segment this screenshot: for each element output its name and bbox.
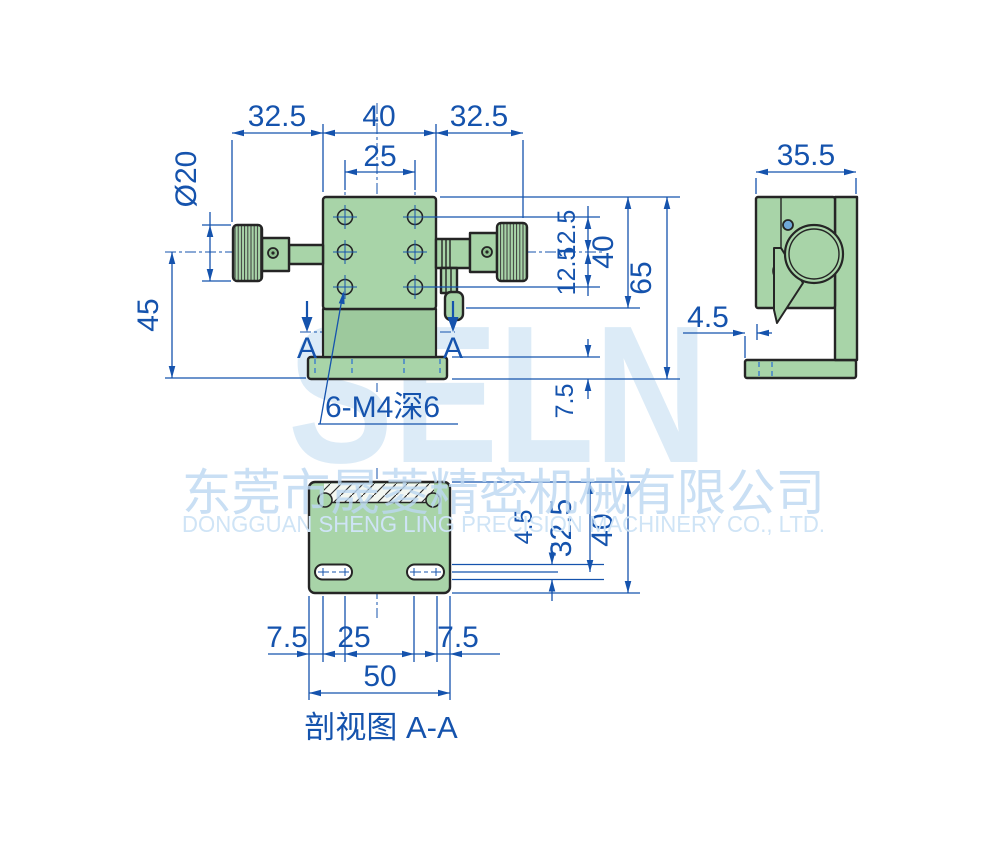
dim-total-height: 65 xyxy=(625,261,658,294)
dim-knob-diameter: Ø20 xyxy=(170,151,203,208)
dim-base-height: 7.5 xyxy=(551,384,579,419)
carriage-body xyxy=(323,309,436,357)
side-set-screw xyxy=(783,220,793,230)
thread-note: 6-M4深6 xyxy=(325,391,440,424)
right-set-screw-dot xyxy=(485,250,488,253)
section-marker-left: A xyxy=(297,332,317,365)
dim-slot-spacing: 25 xyxy=(337,621,370,654)
dim-hole-offset-lower: 12.5 xyxy=(553,247,581,296)
side-foot xyxy=(745,360,856,378)
section-caption: 剖视图 A-A xyxy=(304,710,458,745)
clamp-block xyxy=(441,268,457,293)
dim-side-width: 35.5 xyxy=(777,139,835,172)
dim-section-width: 50 xyxy=(363,660,396,693)
dim-center-height: 45 xyxy=(132,298,165,331)
dim-top-right: 32.5 xyxy=(450,100,508,133)
left-set-screw-dot xyxy=(271,251,274,254)
side-column xyxy=(835,197,857,360)
dim-plate-height: 40 xyxy=(587,235,620,268)
company-name-en-watermark: DONGGUAN SHENG LING PRECISION MACHINERY … xyxy=(182,511,825,537)
dim-top-left: 32.5 xyxy=(248,100,306,133)
section-marker-right: A xyxy=(443,332,463,365)
left-shaft xyxy=(289,245,323,264)
dim-slot-inset-left: 7.5 xyxy=(266,621,308,654)
drawing-canvas: SELN xyxy=(0,0,1001,853)
side-knob-circle-outer xyxy=(785,225,843,283)
dim-side-base-offset: 4.5 xyxy=(687,301,729,334)
right-arm xyxy=(436,239,470,268)
technical-drawing-page: SELN xyxy=(0,0,1001,853)
dim-top-center: 40 xyxy=(362,100,395,133)
dim-slot-inset-right: 7.5 xyxy=(437,621,479,654)
right-knob xyxy=(497,223,527,281)
left-knob xyxy=(233,225,262,281)
side-view xyxy=(745,197,857,378)
dim-hole-spacing: 25 xyxy=(363,140,396,173)
